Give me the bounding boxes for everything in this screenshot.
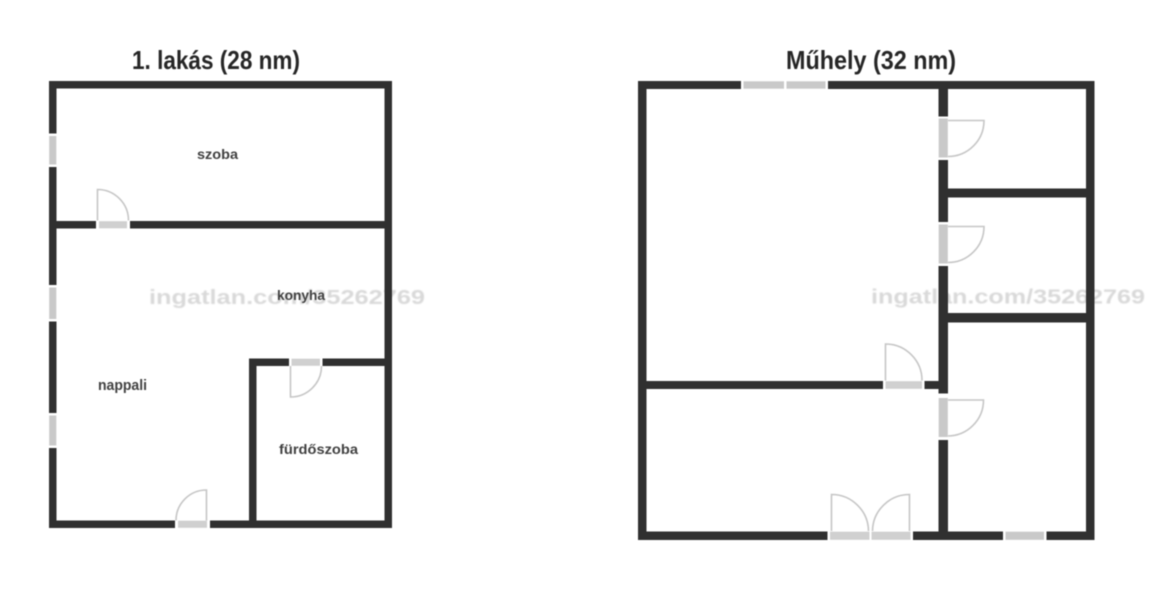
svg-text:konyha: konyha [277,287,325,303]
svg-text:szoba: szoba [197,146,238,162]
svg-text:nappali: nappali [98,377,147,394]
svg-text:Műhely (32 nm): Műhely (32 nm) [786,45,956,75]
svg-text:1. lakás (28 nm): 1. lakás (28 nm) [132,45,300,75]
svg-text:ingatlan.com/35262769: ingatlan.com/35262769 [871,287,1145,309]
svg-text:fürdőszoba: fürdőszoba [279,441,358,457]
